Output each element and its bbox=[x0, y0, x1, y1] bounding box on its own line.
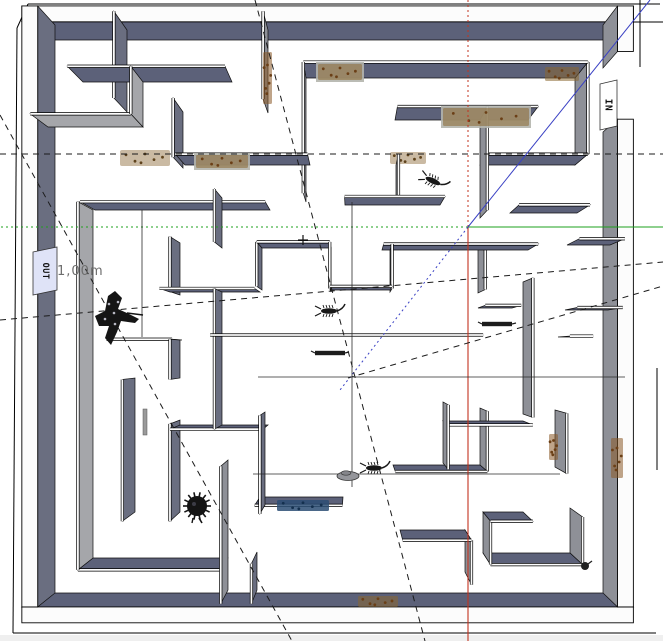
sprite-bar[interactable] bbox=[311, 351, 349, 355]
sign-out[interactable]: OUT bbox=[33, 247, 57, 295]
dimension-label: 1,00m bbox=[57, 264, 104, 279]
sprite-scorpion-1[interactable] bbox=[315, 304, 345, 317]
sprite-scorpion-3[interactable] bbox=[360, 461, 390, 474]
sprite-bar[interactable] bbox=[478, 322, 516, 326]
maze-3d-scene[interactable]: INOUT bbox=[0, 0, 663, 641]
sprite-scorpion-2[interactable] bbox=[418, 169, 451, 193]
sprite-disc[interactable] bbox=[337, 471, 359, 481]
wall-decals bbox=[194, 52, 623, 607]
sign-in[interactable]: IN bbox=[600, 80, 617, 130]
sprite-hedgehog[interactable] bbox=[183, 492, 211, 523]
sign-out-text: OUT bbox=[40, 263, 50, 280]
sprite-stick[interactable] bbox=[143, 409, 147, 435]
sign-in-text: IN bbox=[603, 99, 614, 111]
model-viewport[interactable]: INOUT 1,00m bbox=[0, 0, 663, 641]
